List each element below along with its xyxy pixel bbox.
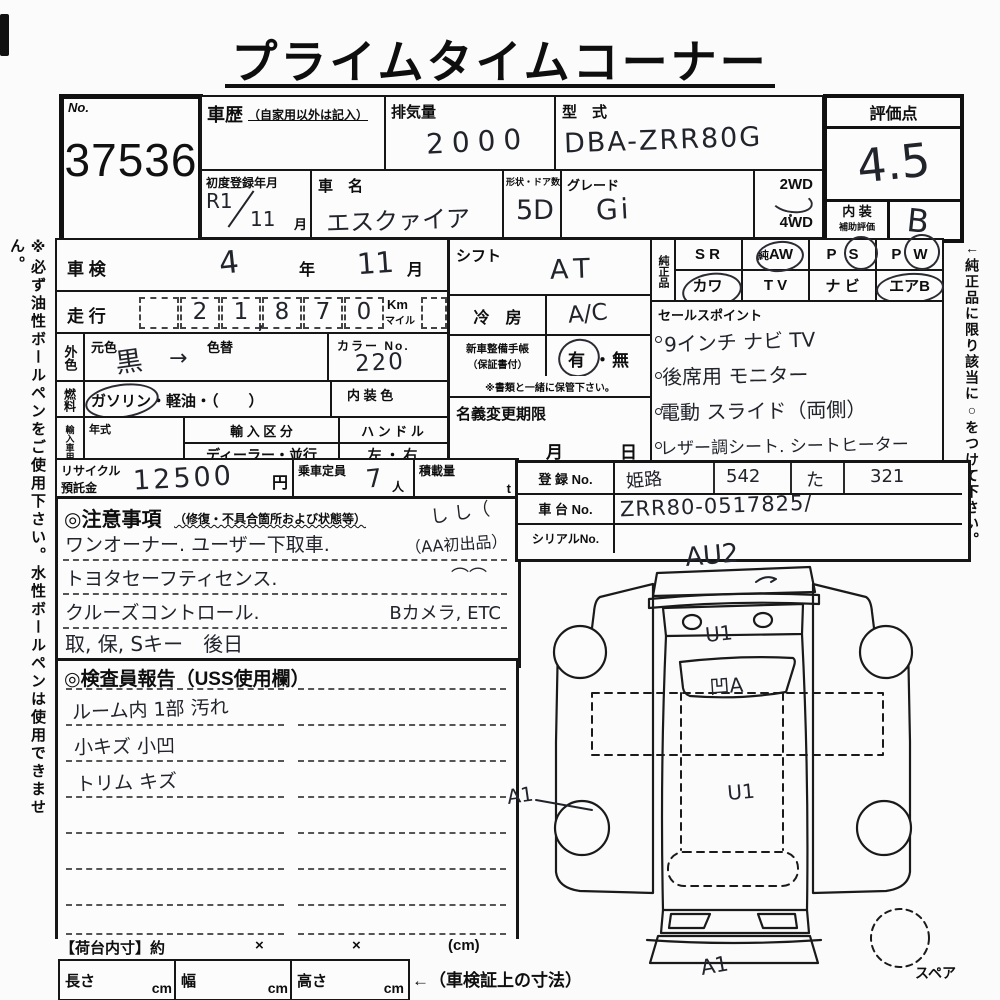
rear-bumper-lip: [647, 940, 821, 943]
mileage-comma: ,: [257, 306, 265, 334]
cowl-nozzle: [754, 613, 772, 627]
caution-box: ◎注意事項 （修復・不具合箇所および状態等） し し（ ワンオーナー. ユーザー…: [55, 496, 521, 668]
shape-doors-label: 形状・ドア数: [506, 175, 560, 188]
auction-sheet: プライムタイムコーナー ※必ず油性ボールペンをご使用下さい。水性ボールペンは使用…: [0, 0, 1000, 1000]
chassis-row: 車 台 No. ZRR80-0517825/: [518, 493, 962, 525]
drive-cell: 2WD 4WD: [753, 169, 824, 239]
shaken-year-suffix: 年: [299, 256, 315, 280]
caution-title-note: （修復・不具合箇所および状態等）: [174, 510, 366, 527]
reg-row: 登 録 No. 姫路 542 た 321: [518, 463, 962, 495]
sales-bullet: [655, 442, 662, 449]
bed-cm: (cm): [448, 937, 480, 954]
capacity-cell: 乗車定員 7 人: [292, 458, 417, 500]
mileage-extra-box: [421, 297, 447, 329]
left-margin-note: ※必ず油性ボールペンをご使用下さい。水性ボールペンは使用できません。: [6, 238, 48, 838]
title-underline: [225, 84, 775, 88]
report-line: [298, 868, 506, 870]
shift-value: AT: [549, 253, 597, 286]
inspector-report-box: ◎検査員報告（USS使用欄） ルーム内 1部 汚れ 小キズ 小凹 トリム キズ: [55, 658, 519, 939]
mileage-unit-km: Km: [387, 297, 408, 312]
aircon-cell: 冷 房 A/C: [448, 294, 652, 338]
displacement-label: 排気量: [391, 101, 436, 122]
front-bumper: [653, 567, 815, 596]
first-reg-cell: 初度登録年月 R1 11 月: [200, 169, 314, 239]
history-label: 車歴: [207, 101, 243, 127]
genuine-tv: T V: [743, 271, 808, 300]
report-line: [66, 933, 284, 935]
sales-points-box: セールスポイント 9インチ ナビ TV 後席用 モニター 電動 スライド（両側）…: [650, 300, 944, 466]
scan-mark: [0, 14, 9, 56]
shaken-year-value: 4: [217, 244, 240, 282]
lot-number: 37536: [64, 133, 198, 187]
caution-line-row: クルーズコントロール. Bカメラ, ETC: [63, 595, 507, 629]
import-division-label: 輸 入 区 分: [185, 420, 338, 440]
report-line: [298, 933, 506, 935]
shape-doors-value: 5D: [516, 195, 554, 226]
rear-bumper: [650, 936, 818, 963]
sales-point-line: 電動 スライド（両側）: [660, 393, 867, 426]
sales-points-label: セールスポイント: [658, 305, 762, 324]
repaint-label: 色替: [207, 337, 233, 356]
reg-sub-divider: [843, 463, 845, 493]
interior-score-label: 内 装 補助評価: [827, 202, 890, 239]
mileage-row: 走 行 2 1 8 7 0 , Km マイル: [55, 290, 449, 336]
bed-x1: ×: [255, 937, 264, 954]
page-title: プライムタイムコーナー: [150, 26, 850, 92]
fuel-label: 燃料: [57, 382, 85, 418]
front-damage-mark: AU2: [684, 542, 740, 573]
report-line: [298, 724, 506, 726]
reg-kana: た: [806, 466, 824, 492]
mileage-digit-box: [139, 297, 179, 329]
report-line: [66, 760, 284, 762]
body-right-edge: [802, 634, 807, 910]
load-label: 積載量: [419, 462, 455, 479]
report-note-line: トリム キズ: [76, 766, 178, 797]
history-cell: 車歴 （自家用以外は記入）: [200, 95, 388, 173]
mileage-digit-box: 2: [180, 297, 220, 329]
left-front-wheel: [554, 626, 606, 678]
reg-class: 542: [726, 466, 760, 487]
color-no-divider: [327, 334, 329, 382]
handle-label: ハ ン ド ル: [340, 420, 445, 440]
caution-line-row: ワンオーナー. ユーザー下取車. （AA初出品）: [63, 527, 507, 561]
mileage-digit-box: 8: [262, 297, 302, 329]
shaken-label: 車 検: [67, 255, 106, 280]
exterior-color-row: 外色 元色 色替 黒 → カラー No. 220: [55, 332, 449, 384]
report-line: [66, 868, 284, 870]
first-reg-era: R1: [206, 189, 233, 213]
history-note: （自家用以外は記入）: [248, 106, 368, 123]
rear-light-left: [669, 914, 710, 928]
interior-score-row: 内 装 補助評価 B: [827, 199, 960, 239]
grade-cell: グレード Gi: [560, 169, 757, 239]
spare-label: スペア: [915, 965, 956, 980]
length-cell: 長さ cm: [58, 959, 178, 1000]
reg-area: 姫路: [625, 464, 663, 493]
model-code-value: DBA-ZRR80G: [564, 122, 763, 160]
report-line: [298, 904, 506, 906]
reg-number: 321: [870, 466, 904, 487]
shaken-row: 車 検 4 年 11 月: [55, 238, 449, 294]
sales-point-line: レザー調シート. シートヒーター: [660, 430, 909, 459]
first-reg-month: 11: [250, 207, 275, 231]
report-line: [66, 904, 284, 906]
base-color-value: 黒: [112, 338, 144, 380]
roof-damage-mark: U1: [726, 779, 755, 805]
import-header-underline: [185, 442, 447, 444]
sales-bullet: [655, 372, 662, 379]
shape-doors-cell: 形状・ドア数 5D: [502, 169, 564, 239]
car-name-value: エスクァイア: [325, 198, 470, 238]
inspector-report-title: ◎検査員報告（USS使用欄）: [64, 664, 310, 691]
name-change-label: 名義変更期限: [456, 403, 546, 424]
height-cell: 高さ cm: [290, 959, 410, 1000]
shaken-month-value: 11: [356, 245, 395, 281]
genuine-sr: S R: [674, 240, 741, 269]
mileage-unit-mile: マイル: [385, 312, 415, 327]
reg-sub-divider: [790, 463, 792, 493]
interior-color-divider: [330, 382, 332, 418]
model-code-label: 型 式: [562, 101, 607, 122]
fuel-row: 燃料 ガソリン・軽油・（ ） 内 装 色: [55, 380, 449, 420]
capacity-value: 7: [365, 463, 384, 494]
recycle-cell: リサイクル 預託金 12500 円: [55, 458, 296, 500]
mileage-label: 走 行: [67, 302, 106, 327]
record-book-note: ※書類と一緒に保管下さい。: [448, 376, 652, 396]
load-cell: 積載量 t: [413, 458, 519, 500]
capacity-label: 乗車定員: [298, 462, 346, 479]
reg-no-label: 登 録 No.: [518, 463, 615, 493]
chassis-no-label: 車 台 No.: [518, 493, 615, 523]
report-line: [298, 832, 506, 834]
fuel-rest: ・軽油・（ ）: [151, 393, 264, 410]
interior-color-label: 内 装 色: [347, 385, 393, 404]
report-line: [66, 832, 284, 834]
caution-line-row: 取, 保, Sキー 後日: [63, 627, 507, 661]
sales-bullet: [655, 408, 662, 415]
shaken-month-suffix: 月: [407, 256, 423, 280]
lot-no-label: No.: [68, 100, 89, 115]
recycle-label: リサイクル 預託金: [61, 462, 120, 496]
report-line: [66, 796, 284, 798]
import-year-label: 年式: [89, 421, 111, 437]
genuine-label: 純正品: [652, 240, 676, 302]
right-rear-wheel: [857, 801, 911, 855]
bed-label: 【荷台内寸】約: [60, 937, 165, 958]
mileage-digit-box: 7: [303, 297, 343, 329]
width-cell: 幅 cm: [174, 959, 294, 1000]
genuine-parts-grid: 純正品 S R 純AW PS PW カワ T V ナ ビ エアB: [650, 238, 944, 304]
mileage-digit-box: 0: [344, 297, 384, 329]
report-line: [298, 760, 506, 762]
mileage-digit-box: 1: [221, 297, 261, 329]
sales-bullet: [655, 336, 662, 343]
repaint-arrow: →: [169, 346, 187, 371]
bumper-check-mark: [756, 577, 776, 582]
report-note-line: ルーム内 1部 汚れ: [72, 692, 229, 724]
shift-cell: シフト AT: [448, 238, 652, 298]
first-reg-month-suffix: 月: [294, 214, 307, 233]
aircon-value: A/C: [567, 299, 609, 328]
record-book-cell: 新車整備手帳 （保証書付） 有 ・ 無: [448, 334, 652, 380]
side-damage-mark: A1: [505, 782, 534, 809]
car-damage-diagram: AU2 U1 凹A U1 A1 A1 スペア: [500, 542, 970, 980]
sales-point-line: 後席用 モニター: [662, 359, 809, 391]
shift-label: シフト: [456, 245, 501, 266]
drive-4wd-label: 4WD: [780, 214, 813, 231]
score-value: 4.5: [827, 129, 960, 197]
spare-tire-circle: [871, 909, 929, 967]
caution-line-row: トヨタセーフティセンス. ⌒⌒: [63, 561, 507, 595]
bed-x2: ×: [352, 937, 361, 954]
rear-damage-mark: A1: [699, 951, 730, 979]
ps-s-circle: [844, 236, 878, 270]
report-note-line: 小キズ 小凹: [74, 731, 176, 760]
model-code-cell: 型 式 DBA-ZRR80G: [554, 95, 824, 173]
right-front-wheel: [860, 626, 912, 678]
displacement-value: 2000: [425, 122, 530, 160]
recycle-unit: 円: [272, 469, 288, 493]
capacity-unit: 人: [392, 478, 404, 495]
recycle-value: 12500: [132, 460, 234, 496]
record-book-label: 新車整備手帳 （保証書付）: [450, 336, 547, 378]
lot-box: No. 37536: [59, 94, 203, 244]
rear-light-right: [758, 914, 797, 928]
displacement-cell: 排気量 2000: [384, 95, 558, 173]
score-label: 評価点: [827, 98, 960, 129]
report-line: [298, 796, 506, 798]
report-line: [66, 724, 284, 726]
grade-value: Gi: [595, 192, 632, 227]
windshield-damage-mark: 凹A: [709, 673, 745, 699]
reg-sub-divider: [713, 463, 715, 493]
rear-window: [668, 852, 798, 886]
grade-label: グレード: [567, 175, 619, 194]
exterior-label: 外色: [57, 334, 85, 382]
report-line: [298, 688, 506, 690]
sales-point-line: 9インチ ナビ TV: [664, 323, 816, 357]
caution-scribble: し し（: [428, 495, 491, 529]
chassis-value: ZRR80-0517825/: [620, 491, 813, 522]
report-line: [66, 688, 284, 690]
record-book-no: 無: [612, 346, 629, 371]
load-unit: t: [507, 481, 511, 496]
floor-outline: [592, 693, 883, 755]
body-left-edge: [662, 636, 666, 910]
score-box: 評価点 4.5 内 装 補助評価 B: [823, 94, 964, 243]
cowl-nozzle: [683, 615, 701, 629]
aircon-label: 冷 房: [450, 296, 547, 336]
color-no-value: 220: [354, 349, 405, 378]
car-name-label: 車 名: [318, 175, 363, 196]
hood-damage-mark: U1: [704, 620, 734, 647]
genuine-navi: ナ ビ: [810, 271, 875, 300]
car-name-cell: 車 名 エスクァイア: [310, 169, 506, 239]
